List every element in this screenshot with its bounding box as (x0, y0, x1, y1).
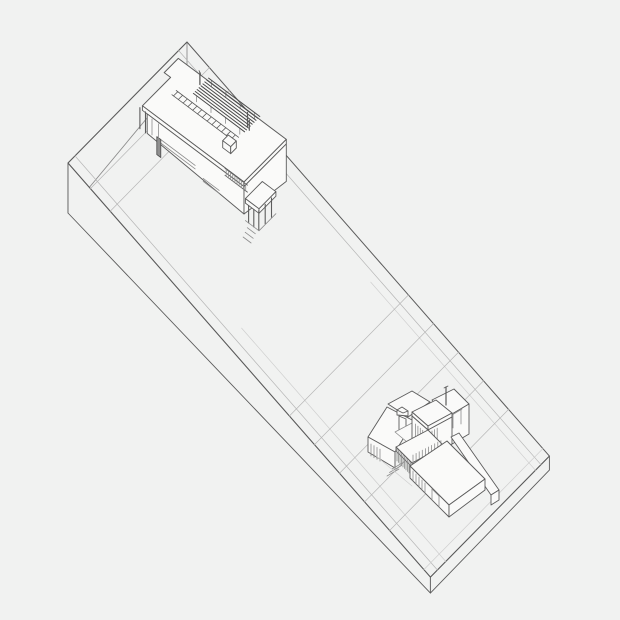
screenshot-root (0, 0, 620, 620)
background (0, 0, 620, 620)
drawing-canvas (0, 0, 620, 620)
